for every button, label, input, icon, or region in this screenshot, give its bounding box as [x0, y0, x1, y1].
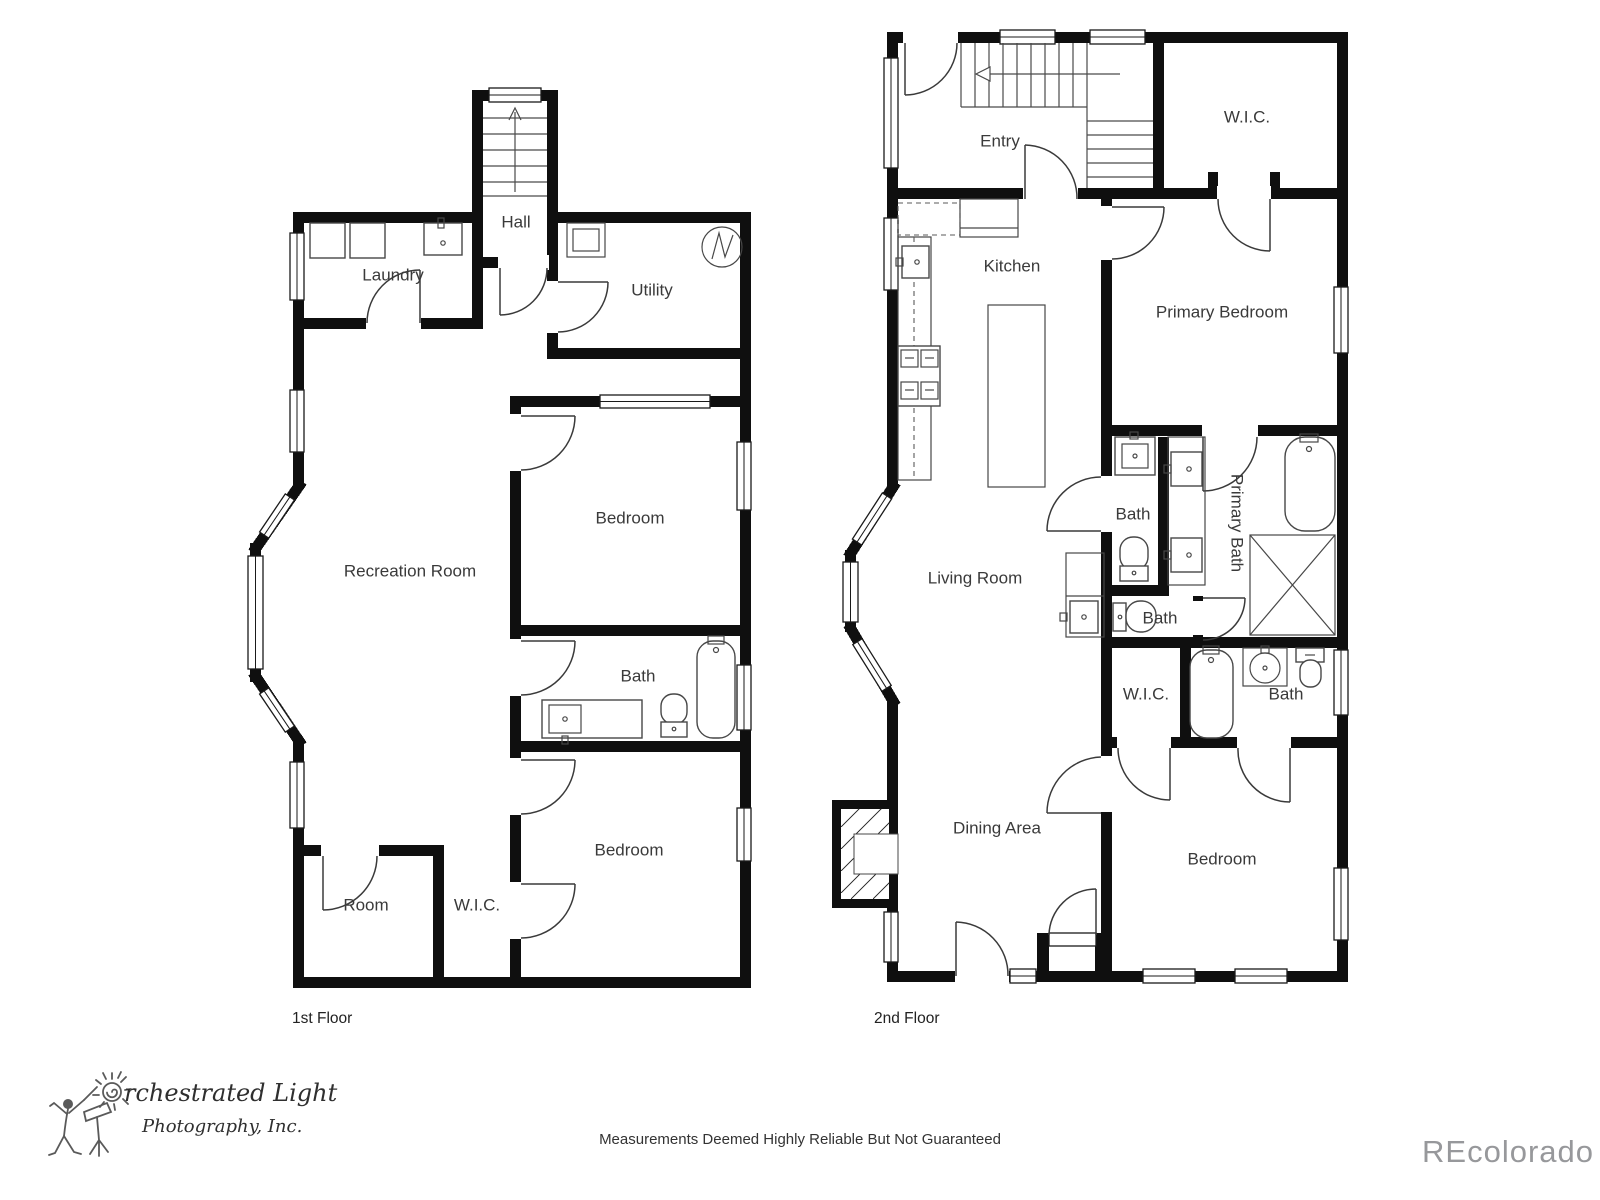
second-floor-fixtures	[896, 199, 1335, 738]
room-label-bedroom: Bedroom	[1188, 850, 1257, 869]
fireplace-icon	[832, 800, 898, 908]
window-icon	[1000, 30, 1055, 44]
window-icon	[1334, 650, 1348, 715]
primary-bath-vanity-icon	[1164, 437, 1205, 585]
bathtub-icon	[1285, 434, 1335, 531]
window-icon	[737, 808, 751, 861]
window-icon	[1235, 969, 1287, 983]
stove-icon	[898, 346, 940, 406]
room-label-room: Room	[343, 896, 388, 915]
room-label-bath-lower: Bath	[1269, 685, 1304, 704]
stair-direction-arrow	[976, 67, 990, 81]
window-icon	[1010, 969, 1036, 983]
logo-name-text: rchestrated Light	[124, 1079, 338, 1107]
bath-vanity-icon	[1115, 432, 1155, 475]
room-label-laundry: Laundry	[362, 266, 424, 285]
room-label-wic-upper: W.I.C.	[1224, 108, 1270, 127]
room-label-living-room: Living Room	[928, 569, 1023, 588]
shower-icon	[1250, 535, 1335, 635]
bath-vanity-icon	[542, 700, 642, 744]
floorplan-image: Laundry Hall Utility Bedroom Recreation …	[0, 0, 1600, 1200]
room-label-dining-area: Dining Area	[953, 819, 1041, 838]
window-icon	[852, 493, 891, 545]
bath-sink-icon	[1243, 646, 1287, 686]
dryer-icon	[350, 223, 385, 258]
room-label-entry: Entry	[980, 132, 1020, 151]
toilet-icon	[661, 694, 687, 737]
toilet-icon	[1296, 648, 1324, 687]
bathtub-icon	[1190, 646, 1233, 738]
window-icon	[290, 762, 304, 828]
first-floor-fixtures	[310, 218, 742, 744]
first-floor-stairs-icon	[483, 108, 547, 196]
wet-bar-sink-icon	[1060, 553, 1104, 637]
window-icon	[1143, 969, 1195, 983]
window-icon	[843, 562, 858, 622]
logo-subtitle-text: Photography, Inc.	[141, 1116, 302, 1137]
room-label-bath: Bath	[621, 667, 656, 686]
second-floor-plan: Entry W.I.C. Kitchen Primary Bedroom Bat…	[832, 30, 1348, 984]
second-floor-stairs-icon	[961, 43, 1153, 188]
window-icon	[260, 494, 295, 538]
window-icon	[884, 912, 898, 962]
bathtub-icon	[697, 636, 735, 738]
window-icon	[737, 442, 751, 510]
second-floor-walls	[832, 32, 1348, 982]
window-icon	[290, 390, 304, 452]
floorplan-page: Laundry Hall Utility Bedroom Recreation …	[0, 0, 1600, 1200]
window-icon	[290, 233, 304, 300]
window-icon	[489, 88, 541, 102]
laundry-sink-icon	[424, 218, 462, 255]
room-label-bedroom-lower: Bedroom	[595, 841, 664, 860]
utility-cabinet-icon	[567, 223, 605, 257]
window-icon	[737, 665, 751, 730]
room-label-primary-bedroom: Primary Bedroom	[1156, 303, 1288, 322]
kitchen-island-icon	[988, 305, 1045, 487]
photographer-logo: rchestrated Light Photography, Inc.	[49, 1072, 338, 1156]
room-label-kitchen: Kitchen	[984, 257, 1041, 276]
room-label-hall: Hall	[501, 213, 530, 232]
window-icon	[884, 218, 898, 290]
kitchen-sink-icon	[896, 246, 929, 278]
window-icon	[1090, 30, 1145, 44]
floor-captions: 1st Floor 2nd Floor	[292, 1010, 939, 1027]
room-label-bath-hall: Bath	[1116, 505, 1151, 524]
window-icon	[853, 639, 891, 691]
electrical-panel-icon	[702, 227, 742, 267]
first-floor-doors	[323, 268, 608, 938]
watermark-text: REcolorado	[1422, 1134, 1594, 1169]
second-floor-room-labels: Entry W.I.C. Kitchen Primary Bedroom Bat…	[928, 108, 1304, 869]
window-icon	[248, 556, 263, 669]
window-icon	[260, 688, 295, 732]
room-label-recreation-room: Recreation Room	[344, 562, 476, 581]
first-floor-plan: Laundry Hall Utility Bedroom Recreation …	[248, 88, 751, 988]
second-floor-caption: 2nd Floor	[874, 1010, 939, 1027]
first-floor-caption: 1st Floor	[292, 1010, 352, 1027]
room-label-primary-bath: Primary Bath	[1228, 474, 1247, 572]
kitchen-counter-icon	[898, 199, 1018, 480]
window-icon	[884, 58, 898, 168]
washer-icon	[310, 223, 345, 258]
disclaimer-text: Measurements Deemed Highly Reliable But …	[599, 1131, 1001, 1148]
room-label-bedroom-upper: Bedroom	[596, 509, 665, 528]
conductor-figure-icon	[49, 1087, 111, 1156]
window-icon	[1334, 868, 1348, 940]
room-label-utility: Utility	[631, 281, 673, 300]
toilet-icon	[1120, 537, 1148, 581]
room-label-wic-lower: W.I.C.	[1123, 685, 1169, 704]
room-label-wic: W.I.C.	[454, 896, 500, 915]
window-icon	[1334, 287, 1348, 353]
room-label-bath-middle: Bath	[1143, 609, 1178, 628]
